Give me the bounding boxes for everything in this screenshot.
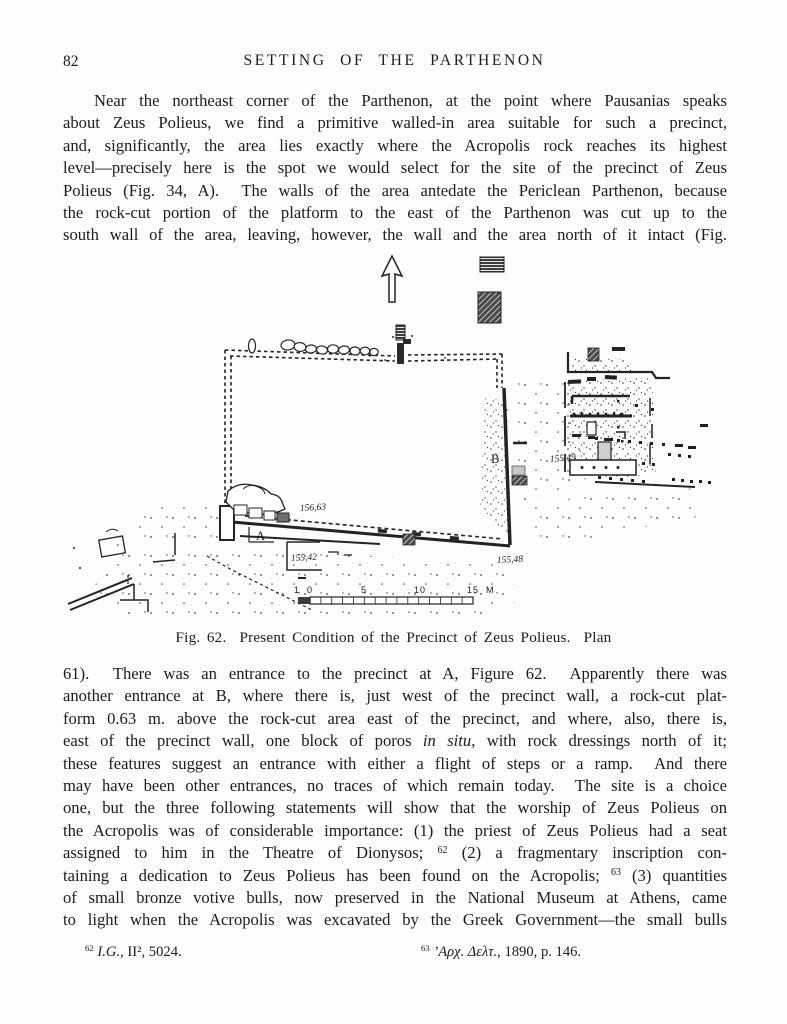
footnote-63: 63 ’Αρχ. Δελτ., 1890, p. 146. (421, 944, 581, 961)
elevation-label: 156,63 (300, 503, 327, 514)
text-line: of small bronze votive bulls, now preser… (63, 887, 727, 909)
text-line: to light when the Acropolis was excavate… (63, 909, 727, 931)
east-structure (565, 347, 695, 487)
scale-tick: 0 (307, 585, 313, 595)
text-line: the Acropolis was of considerable import… (63, 820, 727, 842)
figure-62: 156,63 155,42 155,48 155,49 A B (60, 248, 730, 622)
elevation-label: 155,42 (291, 553, 318, 564)
text-line: another entrance at B, where there is, j… (63, 685, 727, 707)
text-line: may have been other entrances, no traces… (63, 775, 727, 797)
scale-tick: 10 (414, 585, 426, 595)
north-arrow-icon (382, 256, 402, 302)
running-header: 82 SETTING OF THE PARTHENON (63, 52, 726, 72)
scale-tick: 15 (467, 585, 479, 595)
text-line: about Zeus Polieus, we find a primitive … (63, 112, 727, 134)
text-line: and, significantly, the area lies exactl… (63, 135, 727, 157)
elevation-label: 155,48 (497, 555, 524, 566)
text-line: taining a dedication to Zeus Polieus has… (63, 865, 727, 887)
plan-drawing: 156,63 155,42 155,48 155,49 A B (60, 248, 730, 622)
book-page: 82 SETTING OF THE PARTHENON Near the nor… (0, 0, 787, 1024)
scale-tick: 1 (294, 585, 300, 595)
figure-caption: Fig. 62. Present Condition of the Precin… (0, 629, 787, 647)
text-line: 61). There was an entrance to the precin… (63, 663, 727, 685)
text-line: assigned to him in the Theatre of Dionys… (63, 842, 727, 864)
paragraph-2: 61). There was an entrance to the precin… (63, 663, 727, 932)
paragraph-1: Near the northeast corner of the Parthen… (63, 90, 727, 247)
running-title: SETTING OF THE PARTHENON (63, 52, 726, 70)
text-line: Polieus (Fig. 34, A). The walls of the a… (63, 180, 727, 202)
page-number: 82 (63, 53, 79, 71)
text-line: form 0.63 m. above the rock-cut area eas… (63, 708, 727, 730)
scale-unit: M (486, 585, 495, 595)
text-line: east of the precinct wall, one block of … (63, 730, 727, 752)
text-line: the rock-cut portion of the platform to … (63, 202, 727, 224)
text-line: south wall of the area, leaving, however… (63, 224, 727, 246)
text-line: Near the northeast corner of the Parthen… (63, 90, 727, 112)
entrance-a-label: A (256, 529, 265, 543)
hatched-blocks-top (396, 257, 504, 340)
text-line: one, but the three following statements … (63, 797, 727, 819)
scale-tick: 5 (361, 585, 367, 595)
text-line: these features suggest an entrance with … (63, 753, 727, 775)
north-wall-stones (249, 339, 379, 356)
entrance-a-area (220, 484, 289, 542)
footnote-62: 62 I.G., II², 5024. (85, 944, 182, 961)
text-line: level—precisely here is the spot we woul… (63, 157, 727, 179)
entrance-b-label: B (491, 452, 499, 466)
